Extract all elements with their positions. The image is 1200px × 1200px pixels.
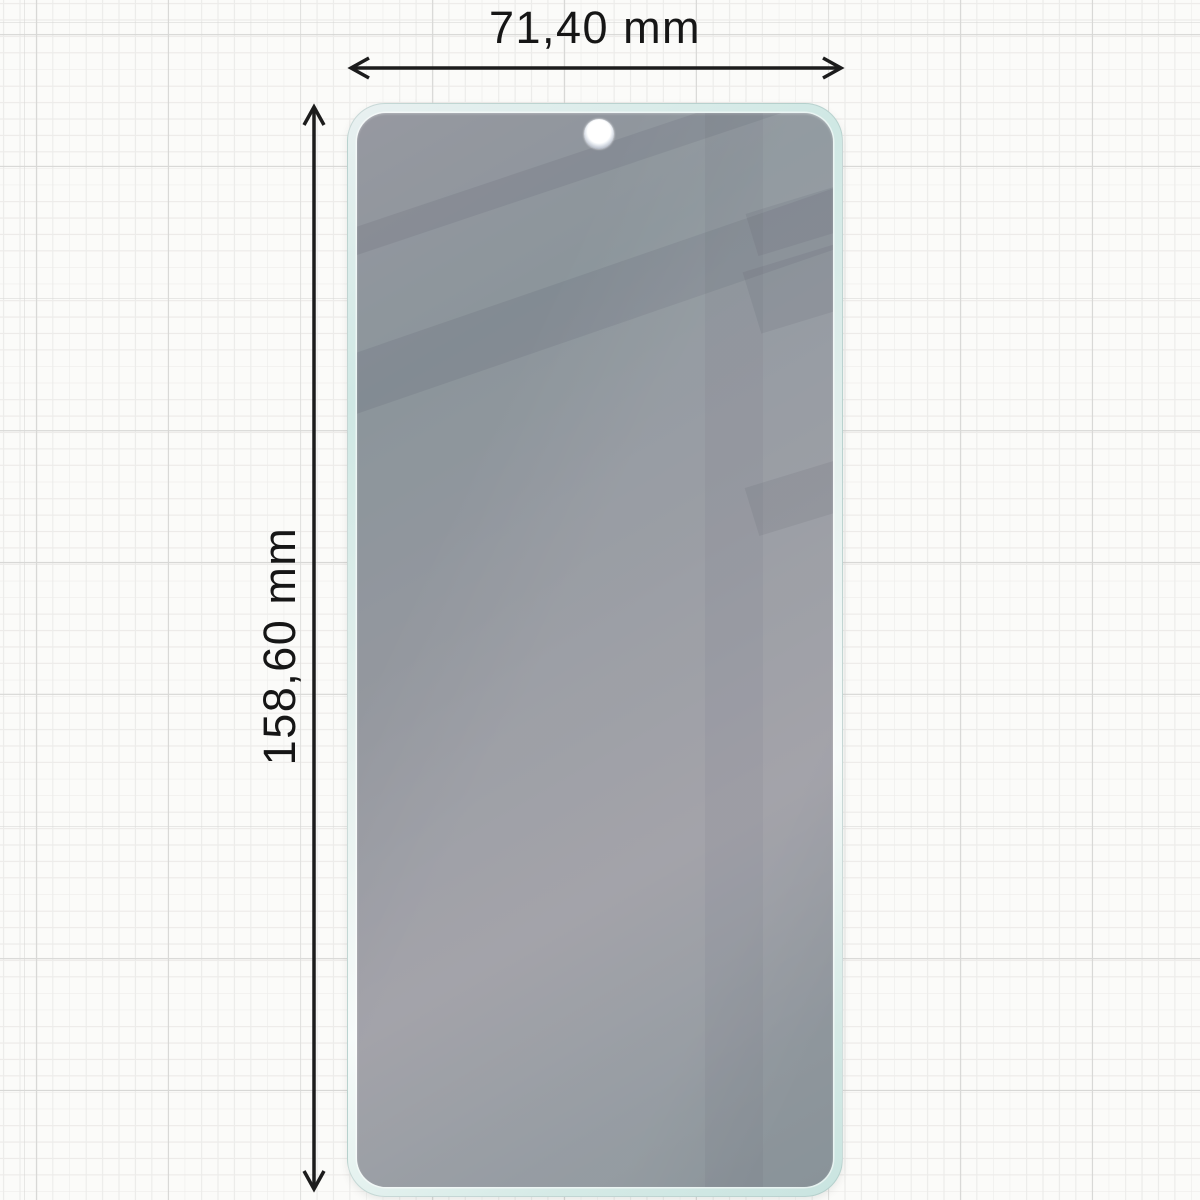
height-dimension-label: 158,60 mm (256, 486, 304, 806)
graph-paper-background: { "diagram": { "type": "screen-protector… (0, 0, 1200, 1200)
glass-sheen-overlay (357, 113, 833, 1187)
protector-glass-surface (357, 113, 833, 1187)
screen-protector (347, 103, 843, 1197)
width-arrow-icon (346, 54, 846, 82)
width-dimension-label: 71,40 mm (345, 2, 845, 54)
height-arrow-icon (300, 102, 328, 1194)
camera-hole-icon (584, 119, 614, 149)
